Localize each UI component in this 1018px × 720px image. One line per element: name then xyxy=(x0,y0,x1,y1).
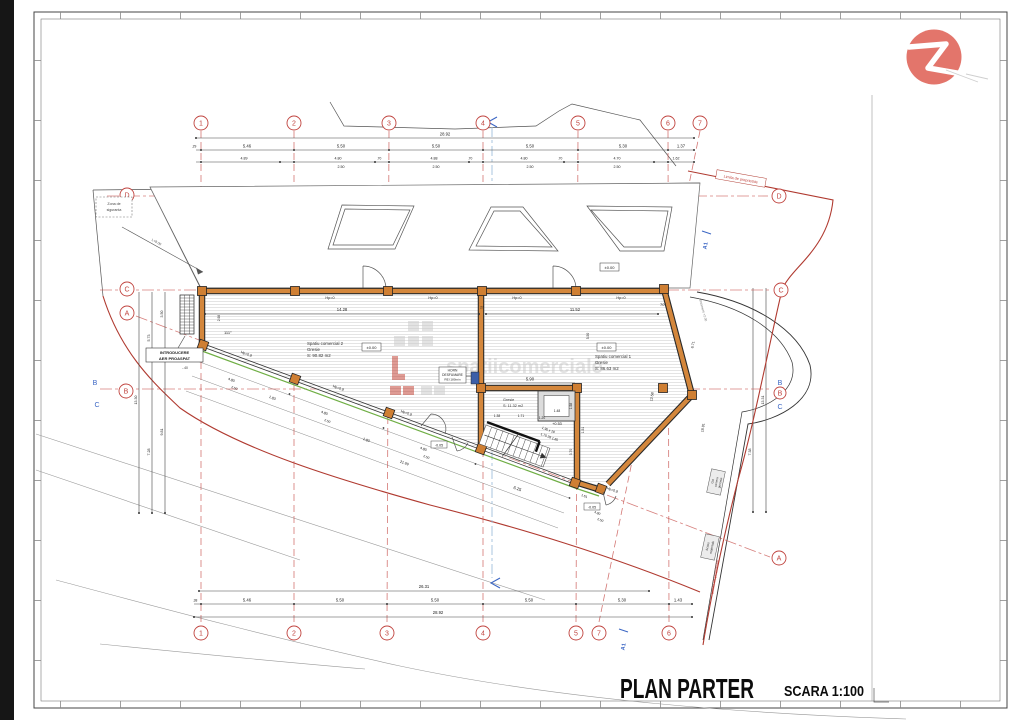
dim-label: 4.70 xyxy=(614,157,621,161)
dim-label: 14.28 xyxy=(337,307,348,312)
dim-label: 4.80 xyxy=(594,510,602,516)
dim-label: 4.89 xyxy=(241,157,248,161)
level-marker: +0.53 xyxy=(552,422,562,426)
dim-label: 13.30 xyxy=(134,396,138,405)
siguranta-label: siguranta xyxy=(107,208,122,212)
dim-label: 3.50 xyxy=(160,311,164,318)
dim-label: 1.83 xyxy=(362,437,370,443)
dim-label: .70 xyxy=(468,157,473,161)
room2-finish: Gresie xyxy=(307,347,320,352)
dim-label: 2.50 xyxy=(231,385,239,391)
aliniament-label: Aliniament +2.00 xyxy=(698,298,708,322)
dim-label: 7.28 xyxy=(147,449,151,456)
axis-letter: C xyxy=(94,402,99,409)
dim-label: 21.99 xyxy=(399,460,409,467)
plan-canvas: Limita de proprietate Limita de propriet… xyxy=(0,0,1018,720)
dim-label: 27 xyxy=(480,306,484,310)
room1-area: S: 86.63 m2 xyxy=(595,366,619,371)
level-marker: ±0.00 xyxy=(367,345,378,350)
level-marker: -0.05 xyxy=(588,505,596,509)
dim-label: 5.50 xyxy=(431,598,440,603)
axis-letter: C xyxy=(777,404,782,411)
angle-label: 70° xyxy=(660,302,666,307)
dim-label: 9.81 xyxy=(160,429,164,436)
grid-bubble: 1 xyxy=(199,631,203,638)
sill-label: Hp=0 xyxy=(428,296,437,300)
dim-label: 2.50 xyxy=(433,165,440,169)
dim-label: 6.71 xyxy=(690,341,695,349)
grid-bubble: B xyxy=(778,391,783,398)
grid-bubble: 3 xyxy=(387,121,391,128)
drawing-title: PLAN PARTER xyxy=(620,673,754,704)
dim-label: 1.38 xyxy=(494,414,501,418)
drawing-sheet: Limita de proprietate Limita de propriet… xyxy=(0,0,1018,720)
ruler-top xyxy=(34,12,1007,19)
dim-label: 1.58 xyxy=(569,403,573,410)
dim-label: 1.61 xyxy=(581,493,589,499)
grid-bubble: 4 xyxy=(481,121,485,128)
aer-note: -.40 xyxy=(182,366,188,370)
dim-label: .70 xyxy=(558,157,563,161)
slope-label: L=8.00 xyxy=(151,238,162,247)
section-label: A1 xyxy=(702,242,709,250)
dim-label: 5.30 xyxy=(618,598,627,603)
dim-label: 5.73 xyxy=(147,335,151,342)
dim-label: 5.50 xyxy=(526,144,535,149)
dim-label: 1.62 xyxy=(673,157,680,161)
dim-label: 2.50 xyxy=(597,517,605,523)
grid-bubble: 6 xyxy=(667,631,671,638)
horn-label: DESFUMARE xyxy=(442,373,463,377)
dims-bottom: 26.31 .38 5.46 5.50 5.50 5.50 5.30 1.43 … xyxy=(193,584,693,618)
dim-label: 4.80 xyxy=(419,446,427,452)
grid-bubble: 2 xyxy=(292,631,296,638)
grid-bubble: D xyxy=(776,194,781,201)
dim-label: .38 xyxy=(193,599,198,603)
dim-label: .70 xyxy=(377,157,382,161)
grid-bubble: 3 xyxy=(385,631,389,638)
sill-label: Hp=0 xyxy=(512,296,521,300)
section-label: A1 xyxy=(620,643,627,651)
grid-bubble: 5 xyxy=(576,121,580,128)
scan-edge xyxy=(0,0,14,720)
dim-label: 26.31 xyxy=(419,584,430,589)
sill-label: Hp=0 xyxy=(616,296,625,300)
dim-label: 1.43 xyxy=(674,598,683,603)
dim-label: 2.50 xyxy=(338,165,345,169)
room2-floor xyxy=(203,294,479,448)
dim-label: 11.52 xyxy=(570,307,581,312)
level-marker: ±0.00 xyxy=(602,345,613,350)
drawing-scale: SCARA 1:100 xyxy=(784,683,864,700)
lobby-finish: Gresie xyxy=(503,398,514,402)
grid-bubble: 5 xyxy=(574,631,578,638)
room1-finish: Gresie xyxy=(595,360,608,365)
dim-label: 4.80 xyxy=(335,157,342,161)
ruler-right xyxy=(1000,12,1007,708)
dim-label: 2.50 xyxy=(324,418,332,424)
dim-label: 28.92 xyxy=(440,132,451,137)
grid-bubble: B xyxy=(124,389,129,396)
aer-label: INTRODUCERE xyxy=(160,350,190,355)
company-logo xyxy=(907,30,989,85)
titleblock: PLAN PARTER SCARA 1:100 xyxy=(620,673,864,704)
canopy xyxy=(150,183,700,289)
dim-label: 18.91 xyxy=(700,423,706,433)
fold-mark xyxy=(874,688,889,702)
sill-label: Hp=0,9 xyxy=(606,486,618,494)
side-entrance-door xyxy=(603,492,616,505)
dim-label: 5.46 xyxy=(243,598,252,603)
grid-bubble: 7 xyxy=(597,631,601,638)
grid-bubble: C xyxy=(124,287,129,294)
axis-letter: B xyxy=(778,380,783,387)
dim-label: 4.80 xyxy=(320,410,328,416)
dim-label: 5.90 xyxy=(526,377,535,382)
dims-top: 28.92 .29 5.46 5.50 5.50 5.50 5.30 1.37 … xyxy=(192,132,695,170)
dim-label: 5.30 xyxy=(619,144,628,149)
dim-label: 5.50 xyxy=(586,333,590,340)
room2-name: Spatiu comercial 2 xyxy=(307,341,344,346)
grid-bubble: 2 xyxy=(292,121,296,128)
grid-bubble: 6 xyxy=(666,121,670,128)
aer-label: AER PROASPAT xyxy=(159,356,191,361)
dim-label: 1.48 xyxy=(554,409,561,413)
dim-label: 2.98 xyxy=(217,315,221,322)
dim-label: 2.50 xyxy=(614,165,621,169)
dim-label: 7.38 xyxy=(748,449,752,456)
grid-bubble: A xyxy=(777,556,782,563)
level-marker: -0.05 xyxy=(435,443,443,447)
dim-label: 3.70 xyxy=(569,449,573,456)
dim-label: 5.50 xyxy=(525,598,534,603)
grid-bubble: 7 xyxy=(698,121,702,128)
air-grille xyxy=(180,295,194,334)
siguranta-box xyxy=(96,197,132,217)
lobby-area: S: 11.32 m2 xyxy=(503,404,523,408)
dim-label: 2.50 xyxy=(423,454,431,460)
dim-label: 1.37 xyxy=(677,144,686,149)
dim-label: 4.80 xyxy=(521,157,528,161)
dim-label: 1.83 xyxy=(268,395,276,401)
dim-label: 6.25 xyxy=(513,485,523,493)
dim-label: 13.31 xyxy=(761,396,765,405)
horn-label: REI 180min xyxy=(444,378,460,382)
angle-label: 111° xyxy=(224,330,232,335)
axis-letter: B xyxy=(93,380,98,387)
dim-label: 4.88 xyxy=(431,157,438,161)
grid-bubble: C xyxy=(778,288,783,295)
dim-label: 1.71 xyxy=(518,414,525,418)
grid-bubble: 4 xyxy=(481,631,485,638)
sill-label: Hp=0 xyxy=(325,296,334,300)
level-marker: ±0.00 xyxy=(605,265,616,270)
grid-bubble: A xyxy=(125,311,130,318)
room1-name: Spatiu comercial 1 xyxy=(595,354,632,359)
dim-label: 28.92 xyxy=(433,610,444,615)
dim-label: .29 xyxy=(192,145,197,149)
dim-label: 1.51 xyxy=(581,427,585,434)
ruler-bottom xyxy=(34,701,1007,708)
grid-bubble: 1 xyxy=(199,121,203,128)
dim-label: 5.50 xyxy=(432,144,441,149)
dim-label: 5.46 xyxy=(243,144,252,149)
ruler-left xyxy=(34,12,41,708)
room2-area: S: 90.82 m2 xyxy=(307,353,331,358)
watermark-text: spatiicomerciale xyxy=(446,356,603,378)
smoke-vent-duct xyxy=(471,372,479,384)
horn-label: HORN xyxy=(448,369,458,373)
dim-label: 1.20 xyxy=(539,416,546,420)
dim-label: 4.80 xyxy=(227,377,235,383)
siguranta-label: Zona de xyxy=(107,202,120,206)
dim-label: 5.50 xyxy=(337,144,346,149)
dim-label: 5.50 xyxy=(336,598,345,603)
dim-label: 2.50 xyxy=(527,165,534,169)
